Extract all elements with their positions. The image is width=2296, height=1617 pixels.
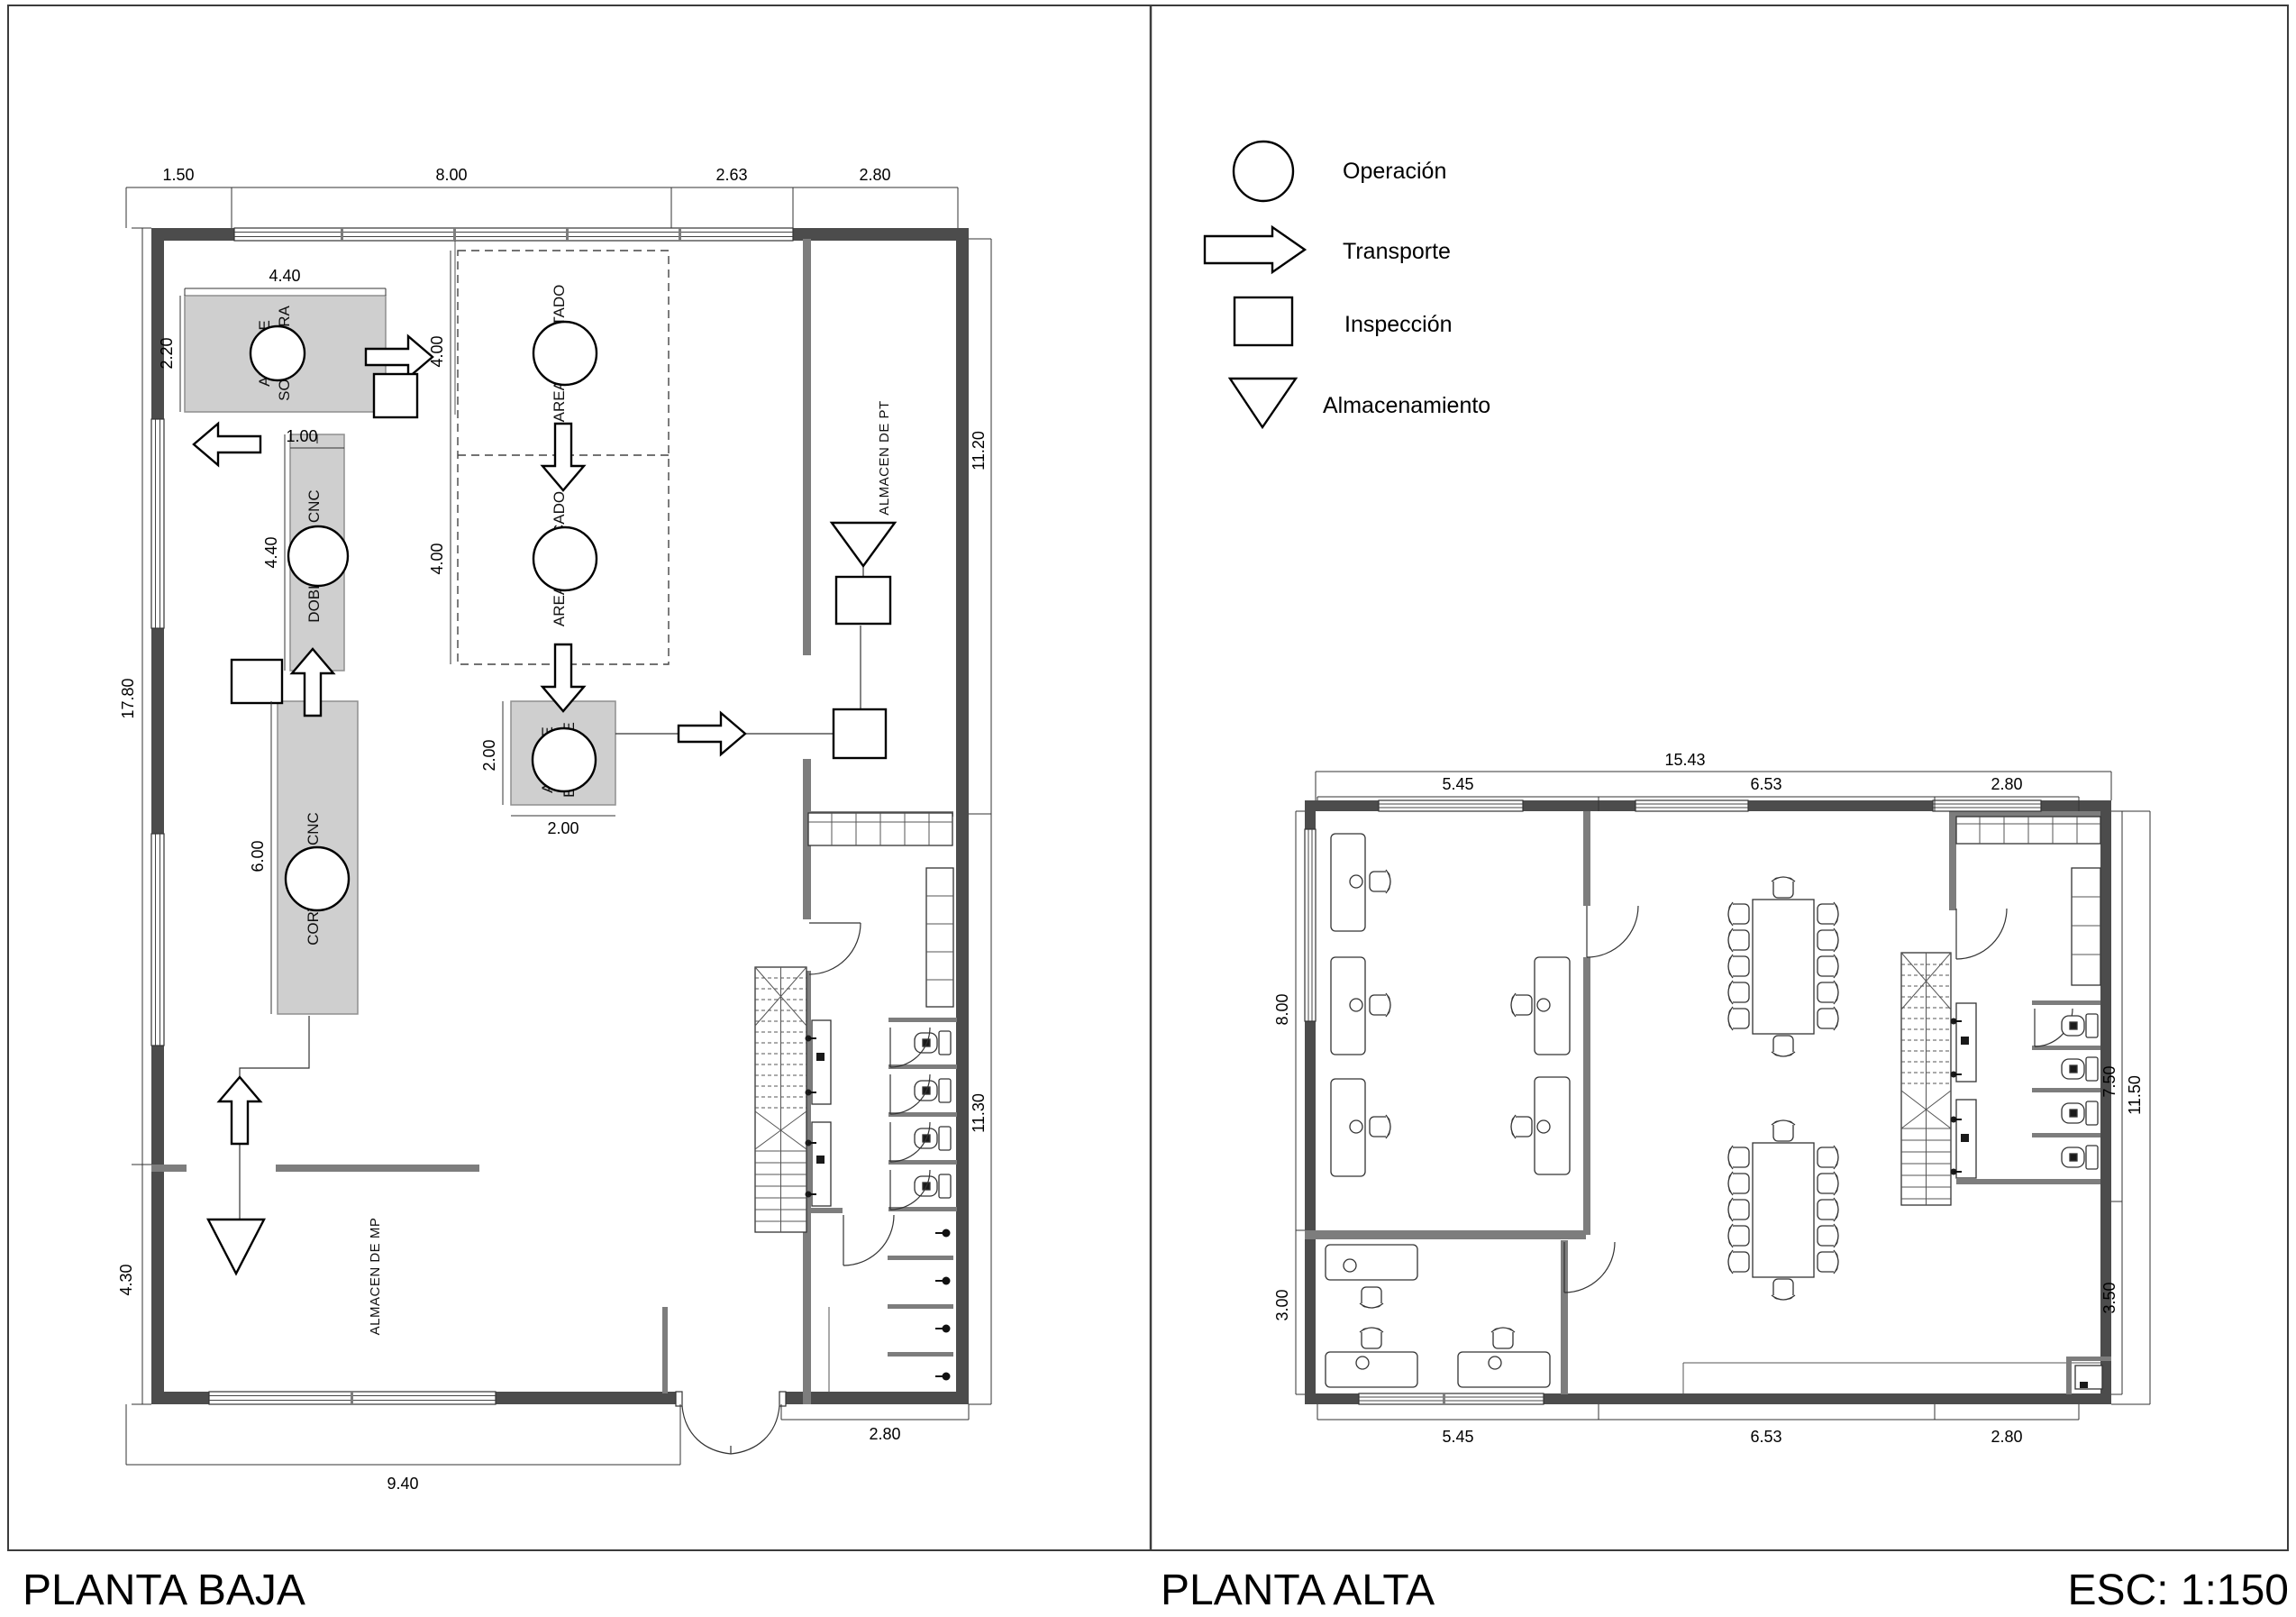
dim: 11.20 [970,431,988,470]
monitor [1537,999,1550,1011]
toilet [2062,1101,2098,1125]
urinal [935,1325,951,1333]
toilet [915,1174,951,1198]
dim: 6.00 [249,840,267,872]
storage-triangle-mp [208,1220,264,1274]
dimensions-pa: 15.43 5.45 6.53 2.80 5.45 6.53 2.80 8.00… [1273,751,2150,1446]
legend-transport-icon [1205,227,1305,272]
legend-operation-label: Operación [1343,159,1446,184]
dim: 17.80 [119,678,137,718]
storage-triangle-pt [832,523,895,566]
legend: Operación Transporte Inspección Almacena… [1205,142,1490,427]
chair [1360,1328,1383,1348]
dim: 3.00 [1273,1289,1291,1320]
dim: 1.50 [162,166,194,184]
transport-arrow-right-pt [679,713,745,754]
title-planta-alta: PLANTA ALTA [1161,1567,1435,1614]
dim: 2.80 [1991,1428,2022,1446]
monitor [1356,1357,1369,1369]
bathroom-entry-door-pb [809,923,861,974]
inspection-square-pt-upper [836,577,890,624]
entrance-double-door [676,1392,786,1454]
dim: 4.00 [428,543,446,574]
desk [1326,1352,1417,1387]
legend-transport-label: Transporte [1343,239,1451,264]
legend-operation-icon [1234,142,1293,201]
dim: 15.43 [1664,751,1705,769]
monitor [1350,999,1362,1011]
lower-office-door [1564,1242,1615,1293]
locker-column [926,868,953,1007]
furniture-pa [1326,834,1838,1387]
urinal-partitions-pb [888,1256,953,1357]
dim: 6.53 [1750,775,1781,793]
legend-inspection-icon [1235,297,1292,345]
inspection-square-soldadura [374,374,417,417]
operation-circle-secado [533,527,597,590]
almacen-mp-label: ALMACEN DE MP [368,1218,383,1336]
monitor [1489,1357,1501,1369]
toilet [2062,1146,2098,1169]
planta-alta-plan: 15.43 5.45 6.53 2.80 5.45 6.53 2.80 8.00… [1273,751,2150,1446]
walls-pa [1305,800,2111,1404]
bathroom-pb [806,813,954,1381]
dim: 5.45 [1442,775,1473,793]
conference-table-1 [1753,900,1814,1034]
dim: 8.00 [1273,993,1291,1025]
desk [1458,1352,1550,1387]
urinal [935,1277,951,1285]
dim: 2.80 [1991,775,2022,793]
stairs-pb [755,967,806,1232]
dim: 3.50 [2100,1282,2118,1313]
operation-circle-cortadora [286,847,349,910]
chair [1511,1115,1532,1138]
urinal [935,1229,951,1238]
dim: 1.00 [286,427,317,445]
planta-baja-plan: AREA DE SOLDADURA DOBLADORA CNC CORTADOR… [117,166,991,1493]
legend-inspection-label: Inspección [1344,312,1453,337]
dim: 11.50 [2126,1075,2144,1115]
chair [1370,1115,1390,1138]
dim: 5.45 [1442,1428,1473,1446]
dim: 4.40 [262,536,280,568]
titles: PLANTA BAJA PLANTA ALTA ESC: 1:150 [23,1567,2289,1614]
dim: 2.00 [547,819,579,837]
dim: 2.20 [158,337,176,369]
stairs-pa [1901,953,1951,1205]
monitor [1350,875,1362,888]
inspection-square-dobladora [232,660,282,703]
dim: 7.50 [2100,1065,2118,1097]
service-area-door [1956,909,2007,959]
dim: 2.80 [859,166,890,184]
dim: 8.00 [435,166,467,184]
chair [1370,870,1390,893]
transport-arrow-down-pintura [542,424,584,490]
chair [1511,993,1532,1017]
operation-circle-pintado [533,322,597,385]
dim: 11.30 [970,1093,988,1133]
desk [1326,1245,1417,1280]
dim: 6.53 [1750,1428,1781,1446]
dim: 4.40 [269,267,300,285]
operation-circle-dobladora [288,526,348,586]
dim: 2.00 [480,739,498,771]
toilet [915,1031,951,1055]
toilet [915,1079,951,1102]
operation-circle-empaque [533,728,596,791]
toilet [2062,1057,2098,1081]
inspection-square-pt-lower [834,709,886,758]
utility-closet [2075,1366,2102,1389]
office-door [1587,906,1638,957]
dim: 4.30 [117,1264,135,1295]
urinal-room-door-pb [843,1215,894,1265]
transport-arrow-left [194,424,260,465]
chair [1370,993,1390,1017]
title-planta-baja: PLANTA BAJA [23,1567,305,1614]
monitor [1350,1120,1362,1133]
urinal [935,1373,951,1381]
operation-circle-soldadura [251,326,305,380]
transport-arrow-up-mp [219,1077,260,1144]
legend-storage-label: Almacenamiento [1323,393,1490,418]
dim: 2.80 [869,1425,900,1443]
drawing-sheet: AREA DE SOLDADURA DOBLADORA CNC CORTADOR… [0,0,2296,1617]
dim: 9.40 [387,1475,418,1493]
bathroom-pa [1951,817,2101,1178]
toilet [915,1127,951,1150]
dim: 4.00 [428,335,446,367]
toilet [2062,1014,2098,1037]
dim: 2.63 [715,166,747,184]
chair [1491,1328,1515,1348]
monitor [1344,1259,1356,1272]
legend-storage-icon [1230,379,1296,427]
chair [1360,1287,1383,1308]
monitor [1537,1120,1550,1133]
locker-column [2072,868,2100,985]
conference-table-2 [1753,1143,1814,1277]
almacen-pt-label: ALMACEN DE PT [877,400,892,515]
scale-label: ESC: 1:150 [2068,1567,2289,1614]
